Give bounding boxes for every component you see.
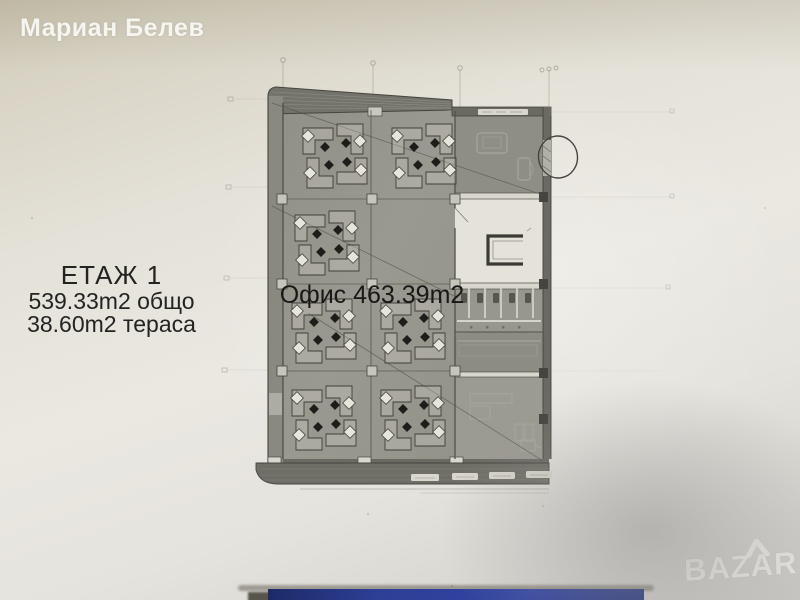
left-wall-door	[269, 393, 282, 415]
office-room	[455, 373, 543, 459]
floor-plan-photo: Мариан Белев ЕТАЖ 1 539.33m2 общо 38.60m…	[0, 0, 800, 600]
floor-title: ЕТАЖ 1	[14, 262, 209, 288]
entrance-room	[455, 116, 543, 194]
seller-name: Мариан Белев	[20, 14, 204, 43]
shopping-bag-handle-icon	[744, 538, 770, 558]
core-room	[455, 194, 543, 284]
blue-table-edge	[268, 589, 644, 600]
total-area-label: 539.33m2 общо	[14, 290, 209, 313]
terrace-area-label: 38.60m2 тераса	[14, 313, 209, 336]
floor-info-block: ЕТАЖ 1 539.33m2 общо 38.60m2 тераса	[14, 262, 209, 336]
service-room	[455, 332, 543, 373]
office-area-label: Офис 463.39m2	[270, 281, 474, 310]
